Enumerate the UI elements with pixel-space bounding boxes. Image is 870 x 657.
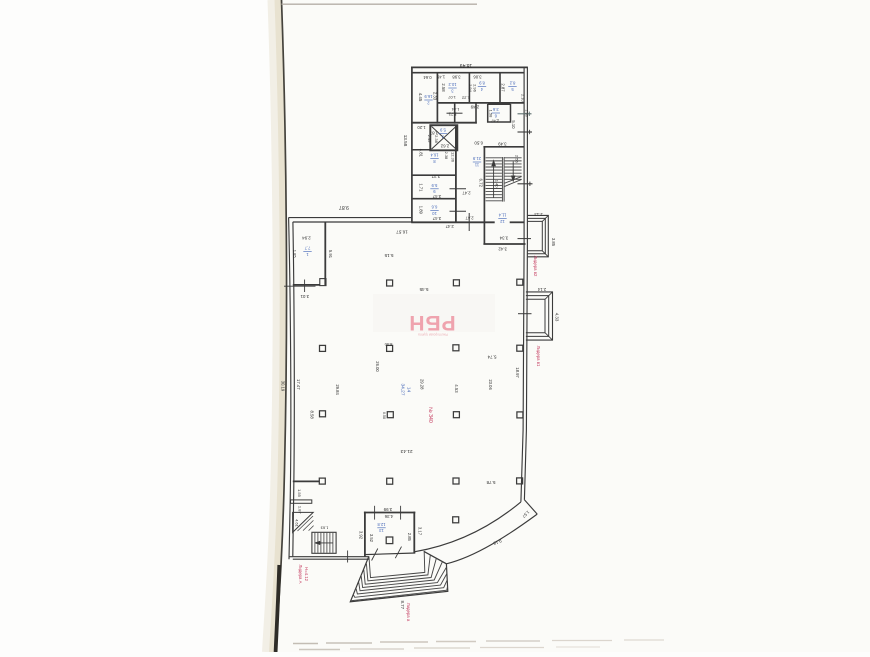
svg-text:№ 340: № 340 bbox=[427, 407, 433, 423]
svg-text:Лидера в2: Лидера в2 bbox=[533, 256, 538, 277]
svg-text:1.55: 1.55 bbox=[297, 489, 302, 498]
svg-text:2.94: 2.94 bbox=[468, 84, 473, 93]
svg-text:3.37: 3.37 bbox=[431, 174, 440, 179]
svg-text:8.77: 8.77 bbox=[400, 601, 405, 610]
svg-text:3.49: 3.49 bbox=[498, 141, 507, 146]
svg-text:2.58: 2.58 bbox=[441, 83, 446, 92]
svg-text:5.9: 5.9 bbox=[431, 183, 437, 188]
svg-text:13: 13 bbox=[379, 528, 384, 533]
svg-text:16.57: 16.57 bbox=[396, 230, 408, 235]
svg-text:16.9: 16.9 bbox=[424, 94, 433, 99]
svg-text:1.87: 1.87 bbox=[298, 506, 303, 515]
svg-text:2.10: 2.10 bbox=[520, 94, 525, 103]
svg-text:7.7: 7.7 bbox=[304, 246, 310, 251]
svg-text:5.45: 5.45 bbox=[419, 287, 428, 292]
svg-text:3.06: 3.06 bbox=[473, 75, 482, 80]
svg-text:1.07: 1.07 bbox=[447, 95, 456, 100]
svg-text:14: 14 bbox=[406, 387, 412, 393]
svg-text:18.97: 18.97 bbox=[515, 367, 520, 378]
svg-text:16.4: 16.4 bbox=[430, 153, 439, 158]
svg-text:3.92: 3.92 bbox=[359, 531, 364, 540]
svg-text:3.85: 3.85 bbox=[551, 238, 556, 247]
svg-text:8.58: 8.58 bbox=[309, 411, 314, 420]
svg-text:2.13: 2.13 bbox=[534, 212, 543, 217]
svg-text:9.87: 9.87 bbox=[339, 204, 349, 210]
svg-text:8.50: 8.50 bbox=[384, 342, 393, 347]
svg-text:1.22: 1.22 bbox=[461, 96, 470, 101]
svg-text:3.99: 3.99 bbox=[383, 507, 392, 512]
svg-text:3.42: 3.42 bbox=[498, 246, 507, 251]
svg-text:6.50: 6.50 bbox=[474, 141, 483, 146]
svg-text:5.91: 5.91 bbox=[328, 250, 333, 259]
svg-text:13.58: 13.58 bbox=[403, 135, 408, 147]
svg-text:3.17: 3.17 bbox=[417, 527, 422, 536]
svg-text:2.47: 2.47 bbox=[445, 224, 454, 229]
svg-text:29.84: 29.84 bbox=[335, 384, 340, 395]
svg-text:3.34: 3.34 bbox=[499, 236, 508, 241]
svg-text:23.06: 23.06 bbox=[488, 379, 493, 390]
svg-text:5.78: 5.78 bbox=[486, 480, 495, 485]
svg-text:4.36: 4.36 bbox=[384, 514, 393, 519]
svg-text:1.72: 1.72 bbox=[448, 112, 457, 117]
svg-text:8.2: 8.2 bbox=[509, 81, 515, 86]
svg-text:0.58: 0.58 bbox=[382, 412, 386, 419]
svg-text:2.38: 2.38 bbox=[444, 152, 449, 161]
svg-text:6.72: 6.72 bbox=[479, 179, 484, 188]
svg-text:Н=4.12: Н=4.12 bbox=[304, 567, 309, 582]
svg-text:21.43: 21.43 bbox=[400, 448, 412, 454]
svg-text:17.47: 17.47 bbox=[296, 379, 301, 390]
svg-text:Лидера А: Лидера А bbox=[298, 565, 303, 584]
svg-text:3.52: 3.52 bbox=[369, 534, 374, 543]
svg-text:11: 11 bbox=[474, 162, 479, 167]
svg-text:РБН: РБН bbox=[408, 311, 455, 334]
svg-text:4.61: 4.61 bbox=[294, 519, 299, 528]
svg-text:Лидера а: Лидера а bbox=[406, 603, 411, 622]
svg-text:1.58: 1.58 bbox=[489, 110, 494, 119]
svg-text:1.44: 1.44 bbox=[451, 107, 460, 112]
svg-text:1.63: 1.63 bbox=[320, 526, 329, 531]
svg-text:2.85: 2.85 bbox=[407, 533, 412, 542]
svg-text:26.00: 26.00 bbox=[375, 361, 380, 372]
svg-text:2.87: 2.87 bbox=[501, 83, 506, 92]
svg-text:3.47: 3.47 bbox=[432, 216, 441, 221]
svg-text:5.15: 5.15 bbox=[384, 253, 393, 258]
svg-text:2.45: 2.45 bbox=[427, 135, 432, 144]
svg-text:0.64: 0.64 bbox=[423, 75, 432, 80]
svg-text:29.28: 29.28 bbox=[419, 379, 424, 390]
svg-text:12.8: 12.8 bbox=[377, 522, 386, 527]
svg-text:3.01: 3.01 bbox=[300, 294, 309, 299]
svg-text:3.98: 3.98 bbox=[452, 75, 461, 80]
svg-text:2.47: 2.47 bbox=[465, 216, 474, 221]
svg-text:1.89: 1.89 bbox=[419, 206, 424, 215]
svg-text:5.10: 5.10 bbox=[511, 120, 516, 129]
svg-text:2.94: 2.94 bbox=[302, 236, 311, 241]
svg-text:2.49: 2.49 bbox=[470, 105, 479, 110]
svg-text:2.62: 2.62 bbox=[440, 144, 449, 149]
svg-text:3.6: 3.6 bbox=[492, 107, 498, 112]
svg-text:12.36: 12.36 bbox=[451, 152, 456, 163]
svg-text:1.49: 1.49 bbox=[436, 75, 445, 80]
svg-text:1.85: 1.85 bbox=[293, 250, 298, 259]
svg-text:1.40: 1.40 bbox=[495, 180, 500, 189]
svg-text:4.53: 4.53 bbox=[454, 384, 459, 393]
svg-text:10: 10 bbox=[432, 211, 437, 216]
svg-text:Лидера в1: Лидера в1 bbox=[536, 346, 541, 367]
svg-text:10.2: 10.2 bbox=[448, 82, 457, 87]
svg-text:1.60: 1.60 bbox=[525, 110, 529, 117]
svg-text:2.56: 2.56 bbox=[514, 155, 519, 164]
svg-text:11.4: 11.4 bbox=[498, 213, 506, 218]
svg-text:8.9: 8.9 bbox=[478, 81, 484, 86]
svg-text:30.19: 30.19 bbox=[281, 381, 286, 392]
svg-text:1.20: 1.20 bbox=[417, 125, 426, 130]
svg-text:5.9: 5.9 bbox=[439, 128, 445, 133]
svg-text:18.49: 18.49 bbox=[460, 62, 473, 68]
svg-text:2.47: 2.47 bbox=[462, 190, 471, 195]
svg-text:2.38: 2.38 bbox=[434, 135, 439, 144]
svg-text:6.6: 6.6 bbox=[431, 205, 437, 210]
svg-text:5.74: 5.74 bbox=[487, 354, 496, 359]
svg-text:Риелторская группа: Риелторская группа bbox=[418, 333, 448, 337]
svg-text:1.71: 1.71 bbox=[419, 183, 424, 192]
svg-text:2.14: 2.14 bbox=[537, 287, 546, 292]
svg-text:4.33: 4.33 bbox=[555, 313, 560, 322]
svg-text:21.9: 21.9 bbox=[472, 156, 481, 161]
svg-text:4.81: 4.81 bbox=[419, 149, 424, 158]
svg-text:4.45: 4.45 bbox=[418, 93, 423, 102]
svg-text:12: 12 bbox=[500, 219, 505, 224]
svg-text:34,27: 34,27 bbox=[400, 383, 406, 395]
